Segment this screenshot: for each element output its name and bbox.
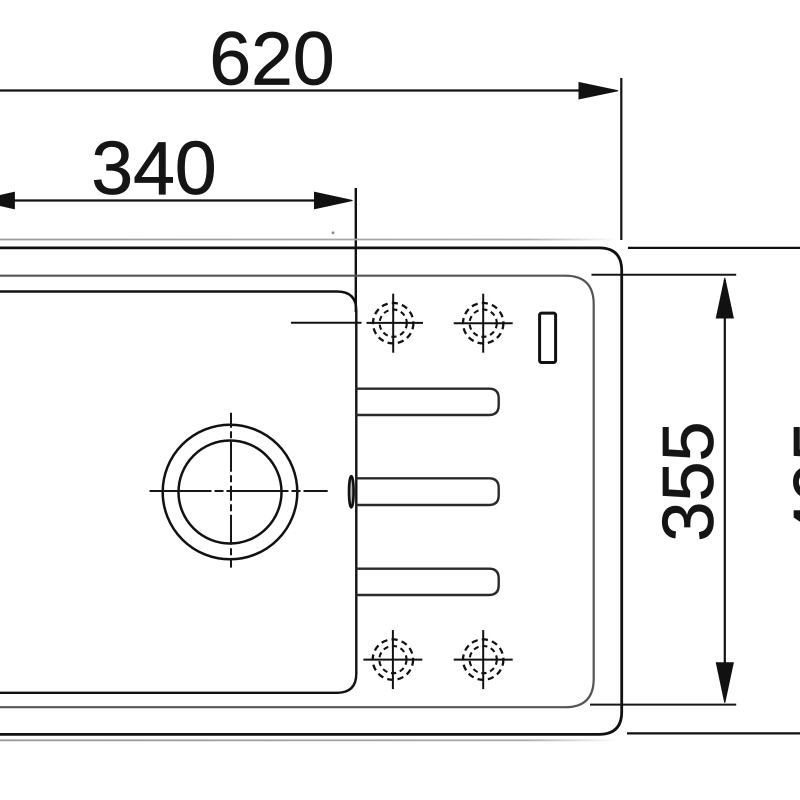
svg-text:495: 495: [780, 421, 800, 541]
svg-text:620: 620: [209, 17, 334, 101]
svg-text:340: 340: [91, 126, 216, 210]
svg-text:355: 355: [649, 421, 729, 541]
